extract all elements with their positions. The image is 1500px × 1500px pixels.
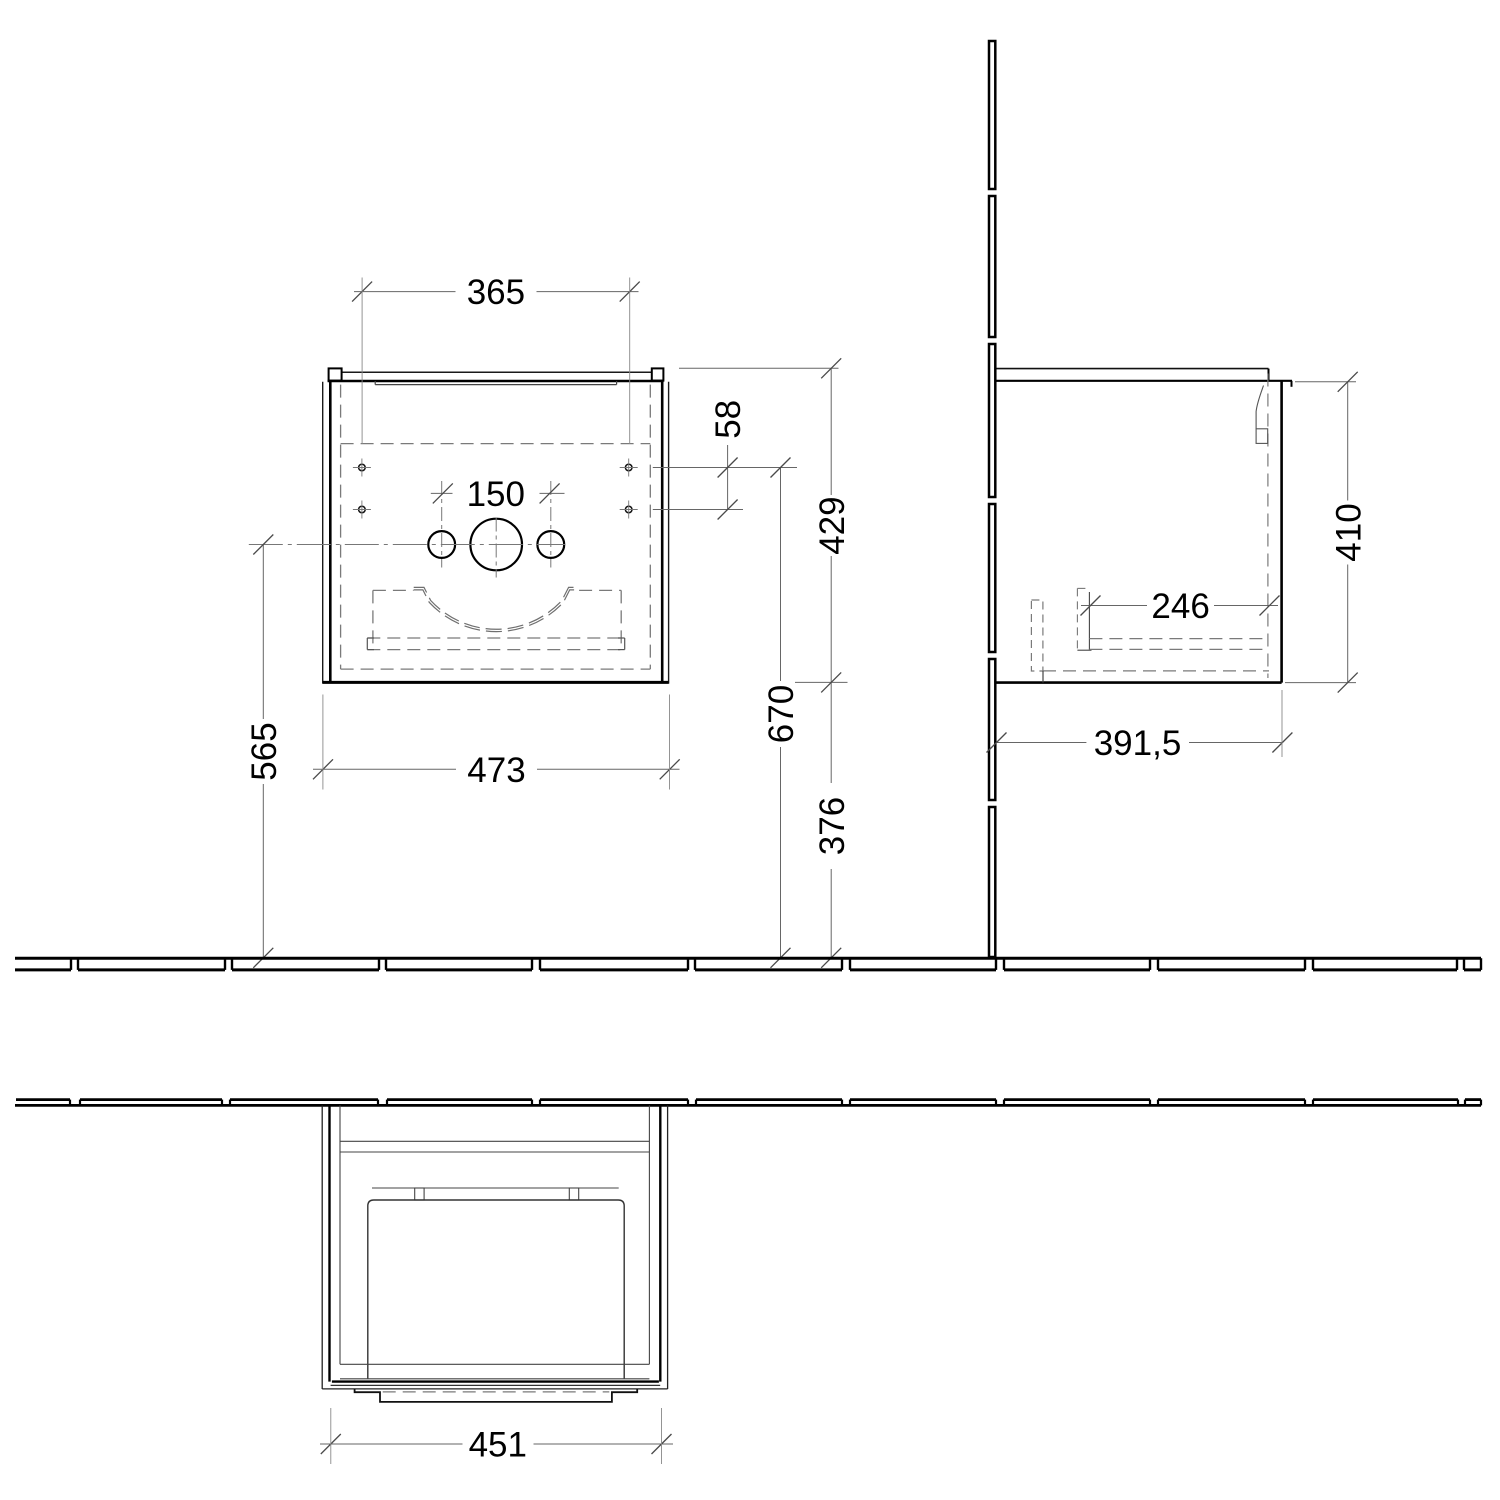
svg-text:429: 429 [813,496,852,554]
svg-text:376: 376 [813,797,852,855]
svg-text:451: 451 [469,1426,527,1465]
svg-text:473: 473 [467,751,525,790]
svg-text:391,5: 391,5 [1094,724,1182,763]
svg-text:150: 150 [467,475,525,514]
svg-text:365: 365 [467,273,525,312]
svg-text:410: 410 [1329,503,1368,561]
svg-text:565: 565 [245,722,284,780]
svg-text:246: 246 [1151,587,1209,626]
svg-text:58: 58 [709,400,748,439]
svg-text:670: 670 [762,685,801,743]
